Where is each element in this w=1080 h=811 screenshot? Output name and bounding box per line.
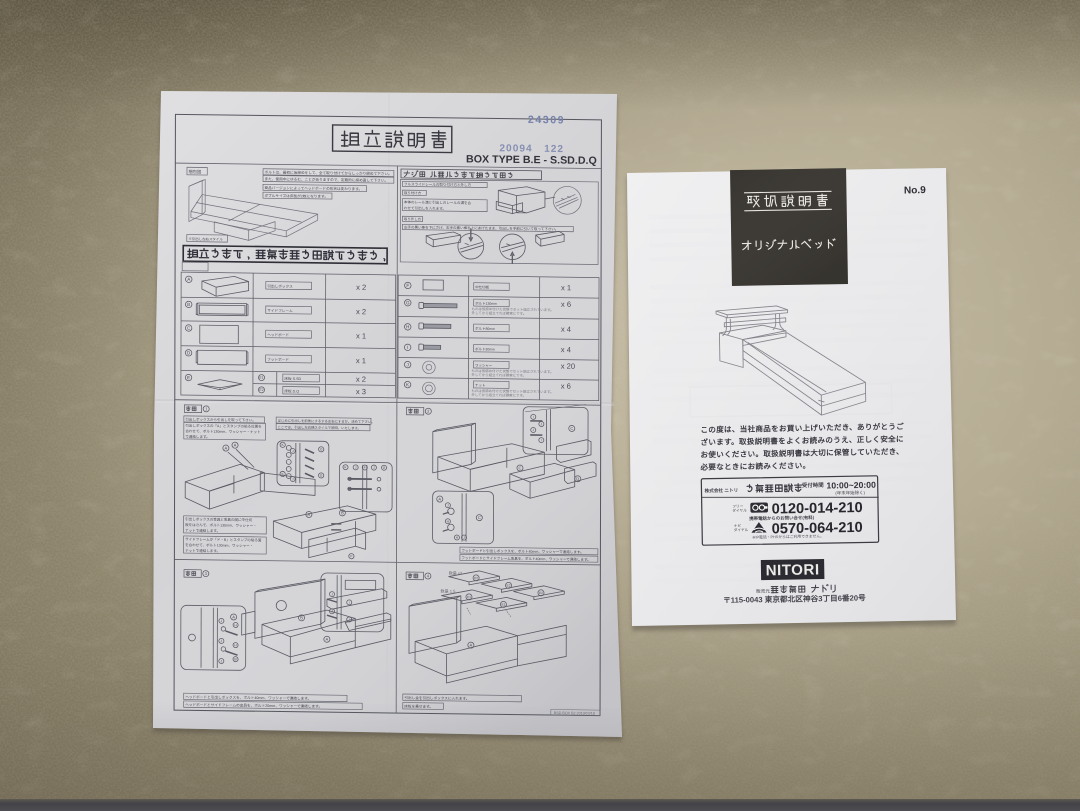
svg-text:引出しボックスの金具と金具の間に中仕切: 引出しボックスの金具と金具の間に中仕切 bbox=[185, 516, 253, 522]
svg-text:A: A bbox=[326, 637, 329, 642]
svg-text:No.9: No.9 bbox=[904, 185, 926, 196]
svg-text:板をはさんで、ボルト130mm、ワッシャー・: 板をはさんで、ボルト130mm、ワッシャー・ bbox=[185, 522, 257, 528]
svg-text:ナットで連結します。: ナットで連結します。 bbox=[185, 528, 220, 533]
svg-text:※引出し左右スタイル: ※引出し左右スタイル bbox=[188, 236, 223, 241]
svg-text:D: D bbox=[576, 476, 579, 481]
svg-text:C: C bbox=[478, 515, 481, 520]
svg-text:x 4: x 4 bbox=[561, 325, 571, 334]
svg-text:x 6: x 6 bbox=[561, 300, 571, 309]
svg-text:A: A bbox=[232, 614, 235, 619]
svg-text:x 2: x 2 bbox=[356, 283, 366, 292]
svg-text:x 6: x 6 bbox=[561, 382, 571, 391]
svg-text:E2: E2 bbox=[259, 388, 263, 392]
svg-text:ナットで連結します。: ナットで連結します。 bbox=[185, 548, 220, 553]
svg-text:ヘッドボード: ヘッドボード bbox=[267, 332, 289, 337]
svg-text:引出しボックスから引出しを取って下さい。: 引出しボックスから引出しを取って下さい。 bbox=[185, 417, 255, 423]
svg-text:フルスライドレールの取り付け方と外し方: フルスライドレールの取り付け方と外し方 bbox=[404, 181, 472, 187]
svg-text:24309: 24309 bbox=[528, 114, 565, 126]
svg-text:F: F bbox=[350, 554, 352, 558]
svg-text:I: I bbox=[541, 438, 542, 442]
svg-text:G: G bbox=[320, 448, 323, 452]
svg-text:x 2: x 2 bbox=[356, 307, 366, 316]
svg-text:C: C bbox=[570, 426, 573, 431]
svg-text:ワッシャー: ワッシャー bbox=[475, 362, 493, 367]
svg-text:H: H bbox=[406, 324, 409, 329]
svg-text:x 20: x 20 bbox=[561, 362, 575, 371]
svg-text:NITORI: NITORI bbox=[766, 561, 820, 579]
svg-text:ナット: ナット bbox=[475, 382, 485, 387]
svg-text:x 4: x 4 bbox=[561, 345, 571, 354]
svg-text:ボルト30mm: ボルト30mm bbox=[475, 346, 495, 351]
svg-text:A: A bbox=[225, 445, 228, 450]
svg-text:合わせて、ボルト130mm、ワッシャー・ナット: 合わせて、ボルト130mm、ワッシャー・ナット bbox=[185, 428, 260, 434]
svg-text:B: B bbox=[300, 615, 303, 620]
svg-text:わせて引出しを入れます。: わせて引出しを入れます。 bbox=[404, 205, 446, 211]
svg-text:数量 1.5: 数量 1.5 bbox=[441, 588, 457, 594]
svg-text:ダイヤル: ダイヤル bbox=[732, 508, 747, 513]
svg-text:フットボード: フットボード bbox=[267, 357, 289, 362]
svg-text:引出し金を引出しボックスに入れます。: 引出し金を引出しボックスに入れます。 bbox=[404, 695, 469, 701]
svg-text:引出しボックス: 引出しボックス bbox=[267, 283, 293, 288]
svg-text:x 1: x 1 bbox=[356, 356, 366, 365]
svg-text:I: I bbox=[407, 345, 408, 350]
svg-text:E1: E1 bbox=[259, 376, 263, 380]
svg-text:x 1: x 1 bbox=[356, 331, 366, 340]
svg-text:ダブルサイズは床板が2枚になります。: ダブルサイズは床板が2枚になります。 bbox=[265, 193, 328, 199]
svg-text:ボルト80mm: ボルト80mm bbox=[475, 326, 495, 331]
svg-text:x 2: x 2 bbox=[356, 375, 366, 384]
svg-text:I: I bbox=[349, 601, 350, 605]
svg-text:中仕切板: 中仕切板 bbox=[475, 284, 489, 289]
svg-text:サイドフレーム: サイドフレーム bbox=[267, 308, 293, 313]
svg-text:BSD BOX B2 2019/03/18: BSD BOX B2 2019/03/18 bbox=[554, 711, 595, 716]
svg-text:I: I bbox=[533, 415, 534, 419]
svg-text:取り付け方: 取り付け方 bbox=[404, 190, 422, 195]
svg-text:G: G bbox=[406, 300, 410, 305]
svg-text:x 3: x 3 bbox=[356, 387, 366, 396]
svg-text:B: B bbox=[341, 510, 344, 515]
svg-text:J: J bbox=[406, 362, 408, 367]
svg-text:I: I bbox=[349, 618, 350, 622]
svg-text:BOX TYPE B.E - S.SD.D.Q: BOX TYPE B.E - S.SD.D.Q bbox=[466, 153, 597, 167]
svg-text:F: F bbox=[364, 466, 366, 470]
svg-text:C: C bbox=[519, 465, 522, 470]
svg-text:本体のレール溝と引出しのレールの溝を合: 本体のレール溝と引出しのレールの溝を合 bbox=[404, 199, 472, 205]
svg-text:x 1: x 1 bbox=[561, 283, 571, 292]
svg-text:A: A bbox=[234, 443, 237, 448]
svg-text:E2: E2 bbox=[507, 584, 511, 588]
svg-text:G: G bbox=[320, 474, 323, 478]
svg-text:B: B bbox=[187, 302, 190, 307]
svg-text:を合わせて、ボルト130mm、ワッシャー・: を合わせて、ボルト130mm、ワッシャー・ bbox=[185, 542, 253, 548]
svg-text:E1: E1 bbox=[467, 595, 471, 599]
svg-text:ダイヤル: ダイヤル bbox=[734, 527, 749, 532]
svg-text:外してから組立てれば確実にです。: 外してから組立てれば確実にです。 bbox=[471, 392, 526, 398]
svg-text:床板 S.SD: 床板 S.SD bbox=[284, 376, 301, 381]
svg-text:ボルト130mm: ボルト130mm bbox=[475, 301, 497, 306]
svg-text:で連結します。: で連結します。 bbox=[185, 434, 209, 439]
svg-text:10:00~20:00: 10:00~20:00 bbox=[826, 480, 876, 491]
svg-text:取り外し方: 取り外し方 bbox=[404, 216, 422, 221]
svg-text:E2: E2 bbox=[474, 576, 478, 580]
svg-text:数量 x3: 数量 x3 bbox=[449, 570, 463, 576]
svg-text:外してから組立てれば確実にです。: 外してから組立てれば確実にです。 bbox=[472, 310, 527, 316]
svg-text:サイドフレームが「ド・B」とスタンプの貼る面: サイドフレームが「ド・B」とスタンプの貼る面 bbox=[185, 536, 262, 542]
svg-text:引出しボックスの「A」とスタンプの貼る位置を: 引出しボックスの「A」とスタンプの貼る位置を bbox=[185, 423, 262, 429]
svg-text:K: K bbox=[406, 382, 409, 387]
svg-text:E1: E1 bbox=[501, 603, 505, 607]
svg-text:E: E bbox=[187, 375, 190, 380]
svg-text:F: F bbox=[406, 283, 409, 288]
svg-text:A: A bbox=[438, 496, 441, 501]
svg-text:フリー: フリー bbox=[732, 503, 743, 508]
svg-text:A: A bbox=[308, 512, 311, 517]
svg-text:床板 D.Q: 床板 D.Q bbox=[284, 388, 299, 393]
svg-text:外してから組立てれば確実にです。: 外してから組立てれば確実にです。 bbox=[472, 372, 527, 378]
svg-text:必要なときにお読みください。: 必要なときにお読みください。 bbox=[699, 460, 810, 472]
svg-text:E2: E2 bbox=[539, 591, 543, 595]
svg-text:A: A bbox=[470, 643, 473, 648]
svg-text:床板を乗せます。: 床板を乗せます。 bbox=[404, 704, 433, 709]
